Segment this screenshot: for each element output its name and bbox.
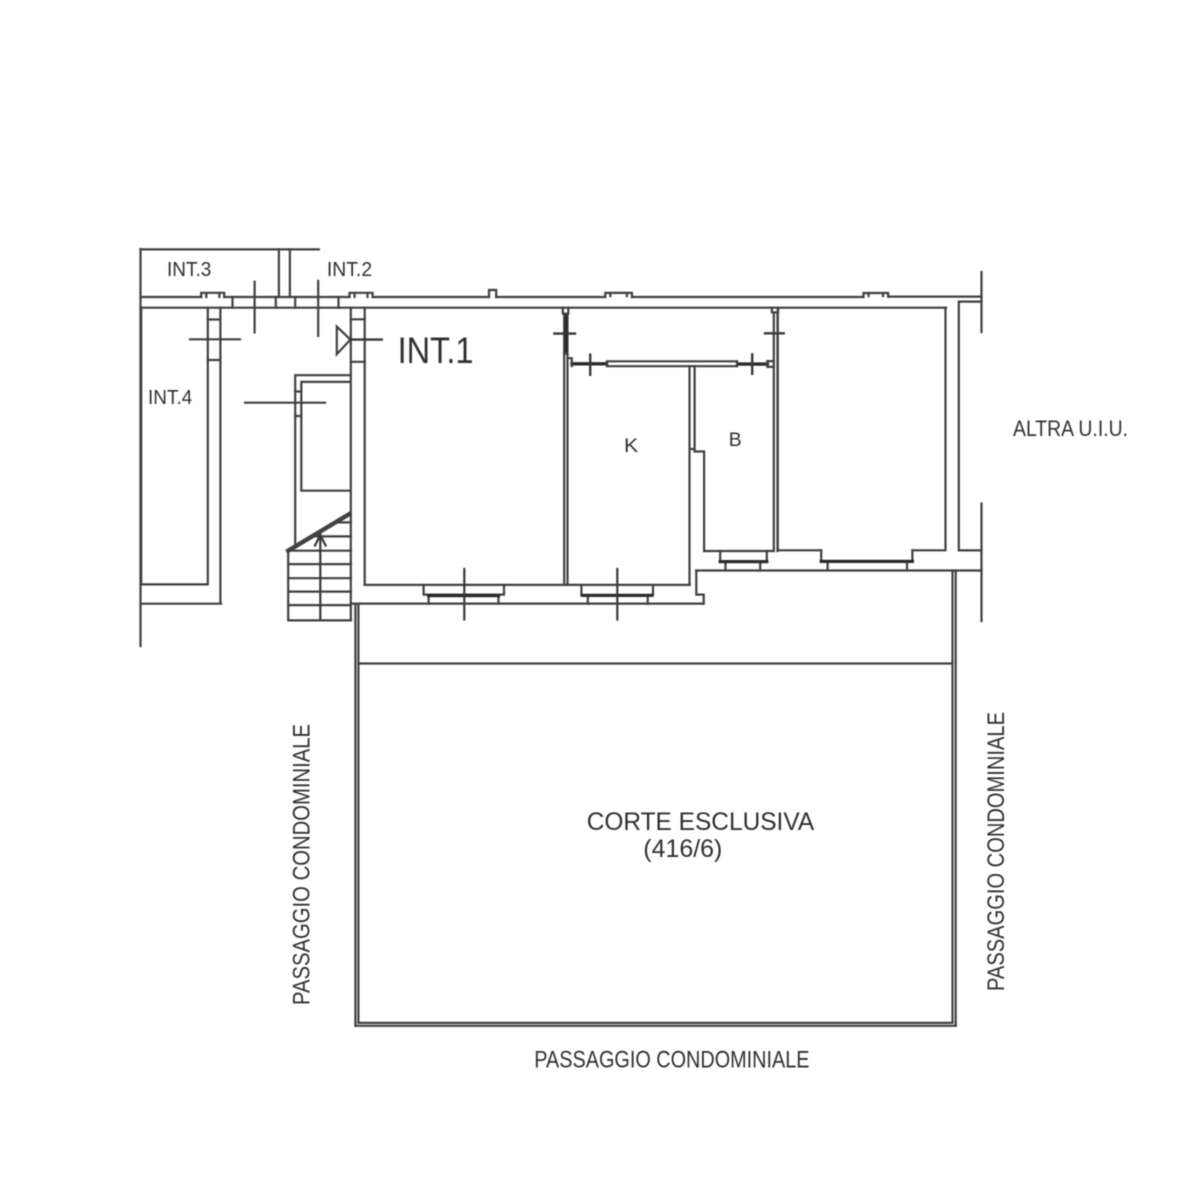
- svg-text:CORTE ESCLUSIVA: CORTE ESCLUSIVA: [587, 809, 815, 836]
- svg-text:INT.2: INT.2: [327, 259, 372, 281]
- svg-text:PASSAGGIO CONDOMINIALE: PASSAGGIO CONDOMINIALE: [534, 1047, 809, 1074]
- svg-text:(416/6): (416/6): [643, 836, 722, 863]
- svg-text:B: B: [729, 429, 742, 451]
- svg-text:PASSAGGIO CONDOMINIALE: PASSAGGIO CONDOMINIALE: [289, 724, 316, 1005]
- svg-text:INT.3: INT.3: [167, 259, 211, 281]
- svg-text:ALTRA U.I.U.: ALTRA U.I.U.: [1013, 416, 1128, 441]
- svg-text:INT.1: INT.1: [398, 329, 474, 371]
- svg-text:PASSAGGIO CONDOMINIALE: PASSAGGIO CONDOMINIALE: [983, 712, 1010, 991]
- svg-text:K: K: [624, 435, 638, 457]
- svg-text:INT.4: INT.4: [148, 387, 192, 409]
